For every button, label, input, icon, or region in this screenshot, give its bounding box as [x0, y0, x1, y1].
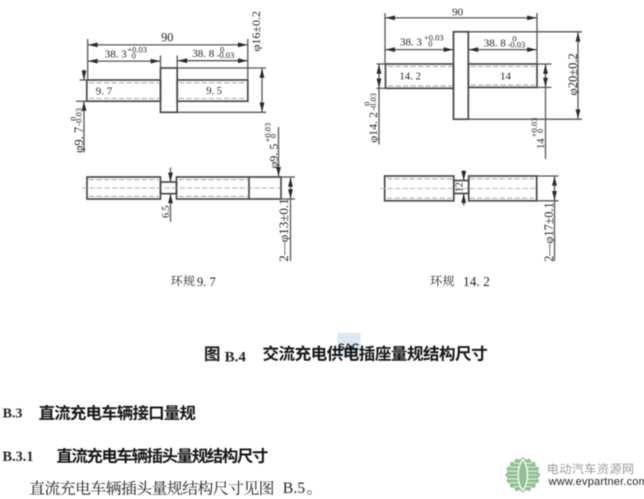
- svg-text:B.3.1: B.3.1: [3, 449, 34, 465]
- svg-text:0: 0: [535, 129, 545, 133]
- svg-text:φ16±0.2: φ16±0.2: [249, 11, 263, 52]
- svg-text:90: 90: [161, 30, 173, 44]
- svg-text:9. 7: 9. 7: [96, 86, 113, 98]
- svg-text:9. 5: 9. 5: [206, 86, 222, 97]
- svg-text:14. 2: 14. 2: [463, 274, 490, 289]
- svg-text:2—φ13±0.1: 2—φ13±0.1: [276, 198, 291, 261]
- svg-text:+0.03: +0.03: [424, 33, 444, 43]
- svg-text:φ14. 2: φ14. 2: [366, 112, 380, 143]
- svg-text:φ9. 5: φ9. 5: [266, 144, 280, 169]
- svg-text:2—φ17±0.1: 2—φ17±0.1: [542, 202, 556, 261]
- svg-text:38. 8: 38. 8: [484, 37, 507, 49]
- svg-text:38. 3: 38. 3: [400, 36, 423, 48]
- svg-text:-0.03: -0.03: [368, 93, 378, 111]
- svg-text:-0.03: -0.03: [74, 108, 84, 126]
- svg-text:14. 2: 14. 2: [399, 70, 421, 82]
- svg-text:0: 0: [428, 38, 432, 48]
- svg-text:B.5: B.5: [283, 480, 305, 497]
- svg-text:-0.03: -0.03: [217, 50, 235, 60]
- svg-text:-0.03: -0.03: [508, 39, 526, 49]
- svg-text:0: 0: [268, 134, 278, 138]
- svg-text:38. 8: 38. 8: [192, 48, 215, 60]
- svg-text:9. 7: 9. 7: [197, 275, 216, 289]
- svg-text:www.evpartner.com: www.evpartner.com: [548, 476, 644, 488]
- svg-text:+0.03: +0.03: [127, 45, 147, 55]
- svg-text:38. 3: 38. 3: [105, 48, 128, 60]
- svg-text:φ20±0.2: φ20±0.2: [566, 53, 580, 95]
- svg-text:14: 14: [536, 138, 547, 149]
- svg-text:14: 14: [500, 71, 512, 83]
- svg-text:+0.03: +0.03: [529, 118, 539, 138]
- svg-text:+0.03: +0.03: [262, 123, 272, 143]
- svg-text:φ9. 7: φ9. 7: [72, 127, 86, 153]
- svg-text:6.5: 6.5: [161, 206, 172, 219]
- svg-text:B.3: B.3: [3, 406, 23, 421]
- svg-text:12: 12: [454, 182, 465, 192]
- svg-text:B.4: B.4: [225, 350, 247, 366]
- svg-text:90: 90: [452, 6, 464, 18]
- svg-text:0: 0: [132, 50, 136, 60]
